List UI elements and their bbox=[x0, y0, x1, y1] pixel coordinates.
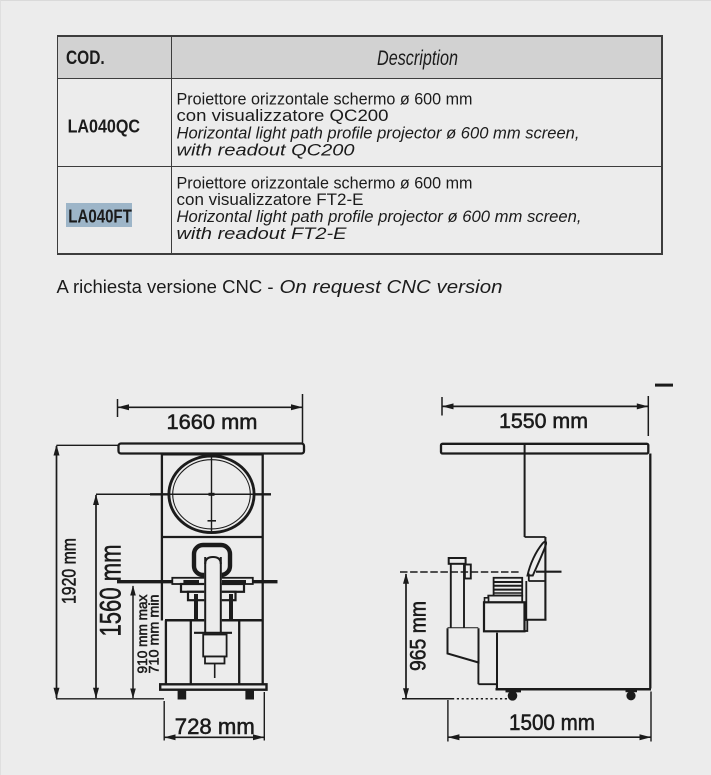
svg-text:1660 mm: 1660 mm bbox=[167, 411, 258, 434]
svg-text:Description: Description bbox=[377, 47, 458, 70]
svg-text:COD.: COD. bbox=[66, 47, 105, 69]
svg-text:728 mm: 728 mm bbox=[175, 714, 255, 739]
svg-text:1550 mm: 1550 mm bbox=[499, 409, 588, 433]
svg-text:with readout QC200: with readout QC200 bbox=[177, 141, 356, 160]
svg-text:with readout FT2-E: with readout FT2-E bbox=[177, 224, 348, 243]
svg-text:On request CNC version: On request CNC version bbox=[280, 277, 503, 297]
svg-text:con visualizzatore QC200: con visualizzatore QC200 bbox=[177, 106, 389, 125]
svg-text:1920 mm: 1920 mm bbox=[58, 538, 80, 604]
svg-text:710 mm min: 710 mm min bbox=[146, 595, 161, 674]
svg-text:1500 mm: 1500 mm bbox=[509, 710, 595, 735]
svg-text:LA040QC: LA040QC bbox=[68, 116, 140, 136]
svg-text:LA040FT: LA040FT bbox=[68, 206, 132, 226]
svg-text:1560 mm: 1560 mm bbox=[94, 545, 127, 637]
svg-text:965 mm: 965 mm bbox=[406, 601, 431, 671]
svg-text:A richiesta versione CNC -: A richiesta versione CNC - bbox=[57, 277, 274, 297]
